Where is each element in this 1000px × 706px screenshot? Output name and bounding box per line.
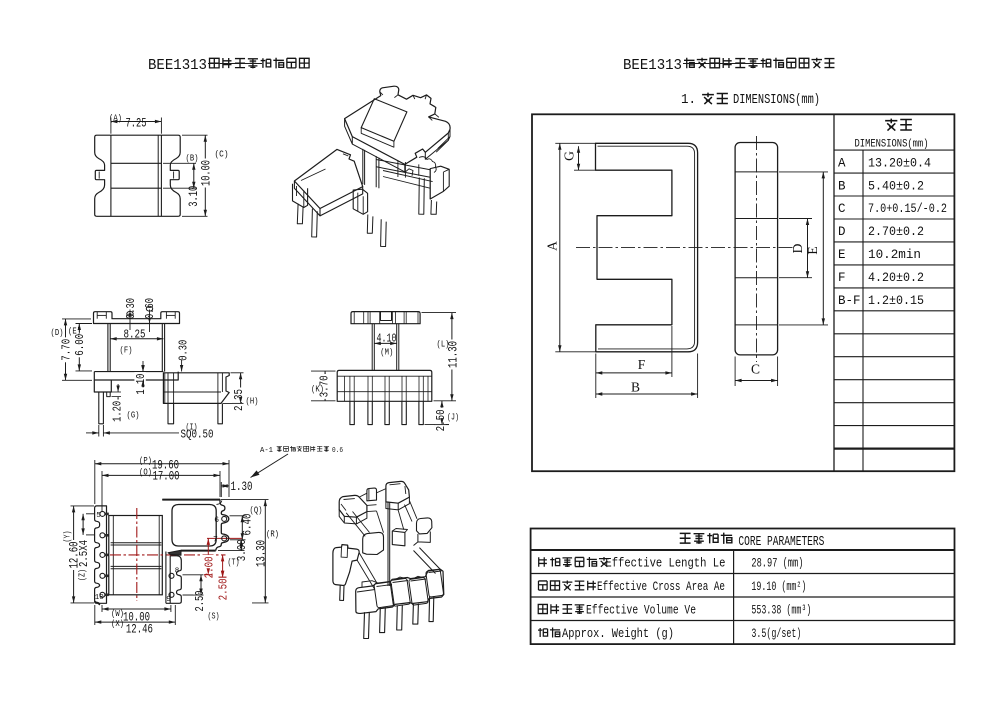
svg-text:10: 10 (95, 594, 105, 602)
svg-text:1.20: 1.20 (111, 401, 125, 422)
svg-text:A-1: A-1 (260, 447, 273, 455)
svg-text:Effective Cross Area Ae: Effective Cross Area Ae (597, 580, 725, 594)
svg-text:DIMENSIONS(mm): DIMENSIONS(mm) (855, 139, 929, 151)
svg-text:(D): (D) (51, 328, 64, 338)
svg-text:1.: 1. (681, 92, 696, 108)
svg-text:Effective Volume Ve: Effective Volume Ve (586, 603, 696, 617)
svg-text:7.25: 7.25 (126, 116, 147, 130)
svg-text:6: 6 (214, 516, 219, 525)
svg-text:1.10: 1.10 (134, 374, 148, 395)
svg-text:2.50: 2.50 (216, 578, 230, 600)
svg-text:4.10: 4.10 (377, 332, 397, 346)
svg-text:553.38 (mm³): 553.38 (mm³) (751, 603, 811, 617)
svg-text:Effective Length Le: Effective Length Le (605, 557, 725, 571)
svg-text:2.50: 2.50 (193, 591, 207, 612)
svg-text:(H): (H) (246, 397, 259, 407)
svg-text:9: 9 (166, 596, 171, 604)
svg-text:C: C (751, 362, 760, 377)
svg-text:E: E (838, 248, 846, 262)
svg-text:12.46: 12.46 (126, 623, 153, 637)
svg-text:4.20±0.2: 4.20±0.2 (868, 271, 924, 285)
svg-text:3.10: 3.10 (187, 186, 201, 207)
svg-text:A: A (545, 241, 560, 251)
svg-text:17.00: 17.00 (153, 469, 180, 483)
svg-text:C: C (838, 202, 846, 216)
svg-text:(C): (C) (215, 150, 229, 160)
svg-text:10.00: 10.00 (199, 160, 213, 186)
svg-text:(J): (J) (447, 413, 459, 423)
svg-text:0.60: 0.60 (143, 298, 157, 319)
svg-text:28.97 (mm): 28.97 (mm) (751, 557, 803, 571)
svg-text:7.70: 7.70 (59, 339, 73, 361)
svg-text:0.6: 0.6 (332, 447, 343, 455)
svg-text:(F): (F) (120, 346, 133, 356)
svg-text:5.40±0.2: 5.40±0.2 (868, 179, 924, 193)
svg-text:6.00: 6.00 (73, 334, 87, 356)
svg-text:(R): (R) (266, 530, 279, 540)
svg-text:BEE1313: BEE1313 (148, 58, 207, 74)
svg-text:(B): (B) (186, 154, 199, 164)
svg-text:8.25: 8.25 (124, 327, 146, 341)
svg-text:7.0+0.15/-0.2: 7.0+0.15/-0.2 (868, 202, 947, 216)
svg-text:D: D (790, 243, 805, 253)
svg-text:DIMENSIONS(mm): DIMENSIONS(mm) (733, 93, 820, 108)
svg-text:G: G (561, 151, 576, 161)
svg-text:B: B (631, 380, 640, 395)
svg-text:2.35: 2.35 (232, 389, 246, 411)
svg-text:(Z): (Z) (78, 569, 88, 581)
svg-text:(Y): (Y) (62, 531, 72, 543)
svg-text:Approx. Weight (g): Approx. Weight (g) (562, 627, 674, 641)
svg-text:2.70±0.2: 2.70±0.2 (868, 225, 924, 239)
svg-text:13.20±0.4: 13.20±0.4 (868, 156, 931, 170)
svg-text:F: F (838, 271, 846, 285)
svg-text:(L): (L) (437, 339, 450, 349)
svg-text:CORE PARAMETERS: CORE PARAMETERS (738, 535, 824, 550)
svg-text:B: B (838, 179, 846, 193)
svg-text:(O): (O) (139, 468, 152, 478)
svg-text:(X): (X) (111, 619, 124, 629)
svg-text:8: 8 (175, 568, 180, 576)
svg-text:12.60: 12.60 (67, 542, 81, 569)
svg-text:E: E (805, 246, 820, 254)
svg-text:7: 7 (213, 536, 218, 545)
svg-text:BEE1313: BEE1313 (623, 58, 682, 74)
svg-text:B-F: B-F (838, 294, 861, 308)
svg-text:1.2±0.15: 1.2±0.15 (868, 294, 924, 308)
svg-text:6.40: 6.40 (240, 514, 254, 536)
svg-text:(W): (W) (111, 609, 124, 619)
svg-text:5: 5 (96, 512, 101, 520)
svg-text:13.30: 13.30 (254, 540, 268, 567)
svg-text:1.30: 1.30 (231, 480, 253, 494)
svg-text:F: F (638, 357, 646, 372)
svg-text:(K): (K) (311, 385, 324, 395)
svg-text:(Q): (Q) (250, 506, 263, 516)
svg-text:(S): (S) (208, 612, 220, 622)
svg-text:A: A (838, 156, 846, 170)
svg-text:10.2min: 10.2min (868, 248, 921, 262)
svg-text:19.10 (mm²): 19.10 (mm²) (751, 580, 806, 594)
svg-text:(G): (G) (127, 411, 140, 421)
svg-text:(M): (M) (380, 348, 393, 358)
svg-text:(A): (A) (109, 113, 122, 123)
svg-text:(E): (E) (68, 327, 81, 337)
svg-text:0.30: 0.30 (176, 340, 190, 361)
svg-text:(T): (T) (228, 558, 240, 568)
svg-text:D: D (838, 225, 846, 239)
svg-text:(P): (P) (139, 456, 152, 466)
svg-text:3.5(g/set): 3.5(g/set) (751, 627, 801, 641)
svg-text:(I): (I) (186, 423, 198, 433)
